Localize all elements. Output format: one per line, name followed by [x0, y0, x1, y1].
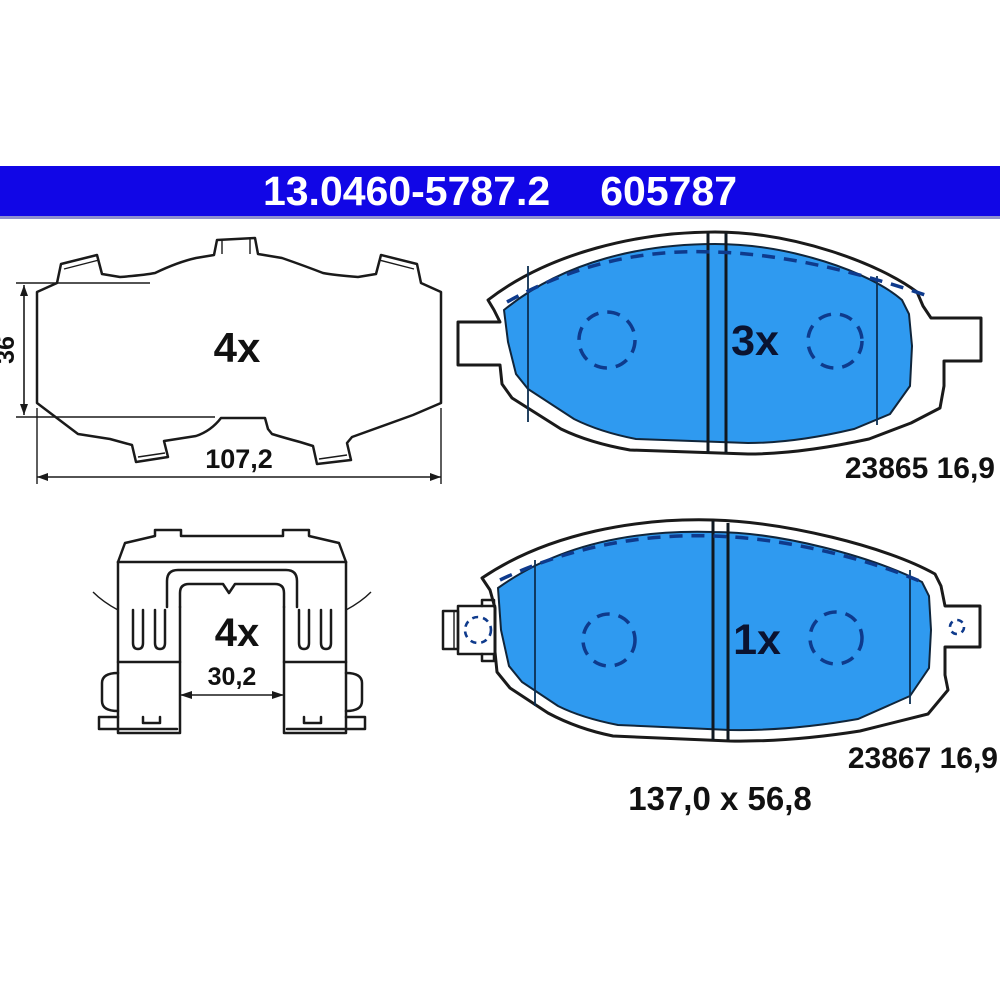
sensor-plug [443, 611, 458, 649]
pad-lower-drawing: 1x [430, 510, 995, 755]
clip-right-spring-flick [346, 592, 371, 610]
arrowhead [430, 473, 441, 481]
clip-right-foot [287, 717, 365, 729]
clip-left-hook [102, 673, 118, 711]
sensor-block [458, 606, 495, 654]
arrowhead [272, 691, 284, 699]
dim-text-107-2: 107,2 [205, 444, 273, 474]
dim-text-30-2: 30,2 [208, 663, 257, 691]
backplate-quantity: 4x [214, 324, 261, 371]
clip-channel-inner [180, 584, 284, 607]
pad-lower-quantity: 1x [733, 616, 781, 664]
dim-extension-lines-vertical [16, 283, 215, 417]
arrowhead [37, 473, 48, 481]
clip-left-spring-flick [93, 592, 118, 610]
dim-text-36: 36 [0, 336, 20, 364]
clip-right-leg [284, 562, 346, 733]
sensor-hole-circle [465, 617, 491, 643]
pad-upper-label: 23865 16,9 [820, 452, 995, 486]
clip-right-hook [346, 673, 362, 711]
clip-left-leg [118, 562, 180, 733]
pad-lower-label: 23867 16,9 [820, 742, 998, 776]
reference-number: 605787 [600, 171, 737, 212]
backplate-outline-drawing: 36 107,2 4x [0, 228, 460, 490]
arrowhead [180, 691, 192, 699]
overall-dimensions-label: 137,0 x 56,8 [580, 780, 860, 818]
arrowhead [20, 404, 28, 415]
part-number-banner: 13.0460-5787.2 605787 [0, 166, 1000, 219]
clip-quantity: 4x [215, 611, 260, 655]
ate-part-number: 13.0460-5787.2 [263, 171, 550, 212]
clip-top-band [118, 530, 346, 562]
pad-upper-quantity: 3x [731, 317, 779, 365]
clip-left-slots [133, 610, 165, 649]
product-technical-image: 13.0460-5787.2 605787 36 107,2 4x [0, 0, 1000, 1000]
clip-right-slots [299, 610, 331, 649]
clip-left-foot [99, 717, 177, 729]
fitting-clip-drawing: 30,2 4x [85, 515, 405, 750]
arrowhead [20, 285, 28, 296]
